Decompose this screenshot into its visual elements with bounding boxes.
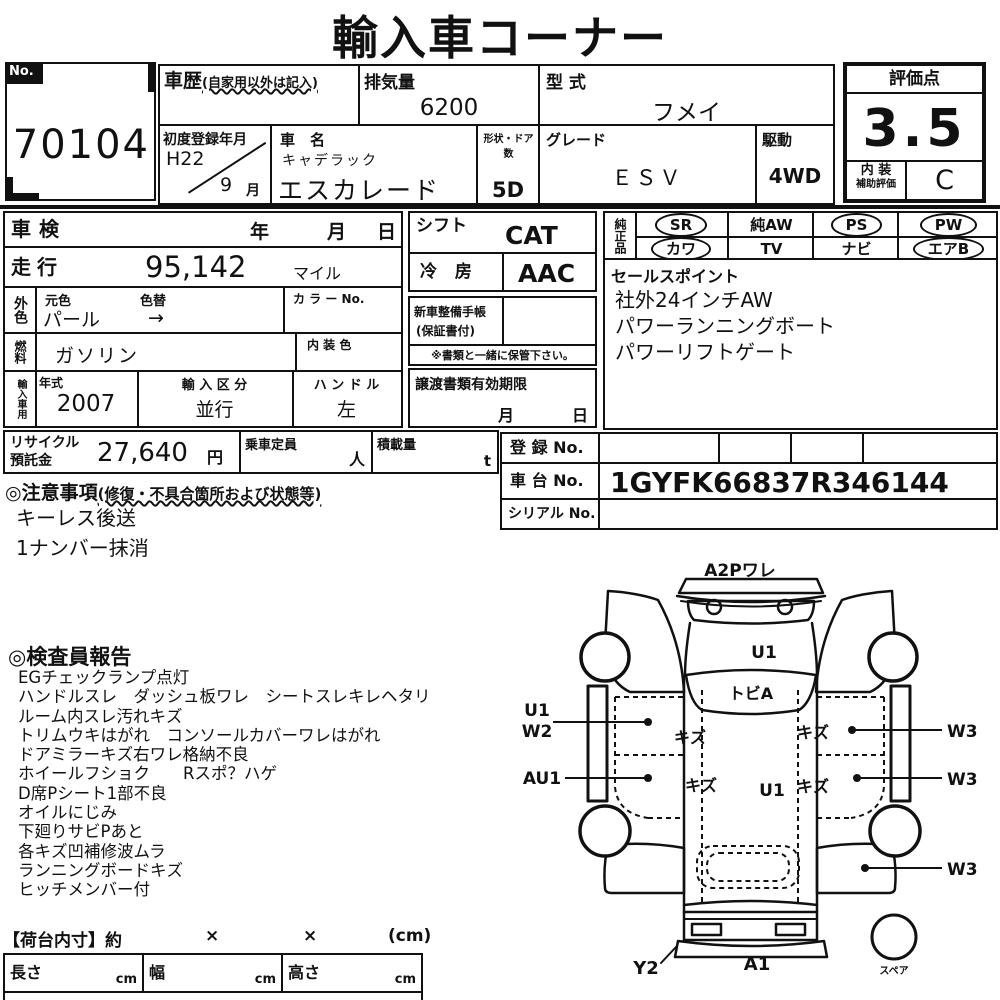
lot-number-label: No. [9, 64, 34, 79]
auction-sheet: 輸入車コーナー No. 70104 車歴(自家用以外は記入) 排気量 6200 … [0, 0, 1000, 1000]
diagram-windshield-label: トビA [729, 684, 774, 703]
diagram-scratch-front-left: キズ [674, 728, 706, 747]
diagram-right-label-3: W3 [947, 860, 978, 880]
diagram-top-label: A2Pワレ [704, 561, 775, 581]
diagram-right-label-2: W3 [947, 770, 978, 790]
car-damage-diagram: A2Pワレ U1 トビA U1 W2 AU1 W3 W3 W3 キズ キズ キズ… [0, 0, 1000, 1000]
diagram-spare-label: スペア [879, 965, 908, 977]
diagram-scratch-rear-left: キズ [685, 776, 717, 795]
diagram-scratch-front-right: キズ [797, 723, 829, 742]
diagram-rear-bumper-label: A1 [744, 954, 770, 975]
diagram-hood-label: U1 [751, 643, 777, 663]
diagram-scratch-rear-right: キズ [797, 777, 829, 796]
diagram-right-label-1: W3 [947, 722, 978, 742]
diagram-left-label-1a: U1 [524, 701, 550, 721]
diagram-left-label-1b: W2 [522, 722, 553, 742]
diagram-center-label: U1 [759, 781, 785, 801]
diagram-rear-corner-label: Y2 [632, 958, 659, 979]
diagram-left-label-2: AU1 [523, 769, 561, 789]
